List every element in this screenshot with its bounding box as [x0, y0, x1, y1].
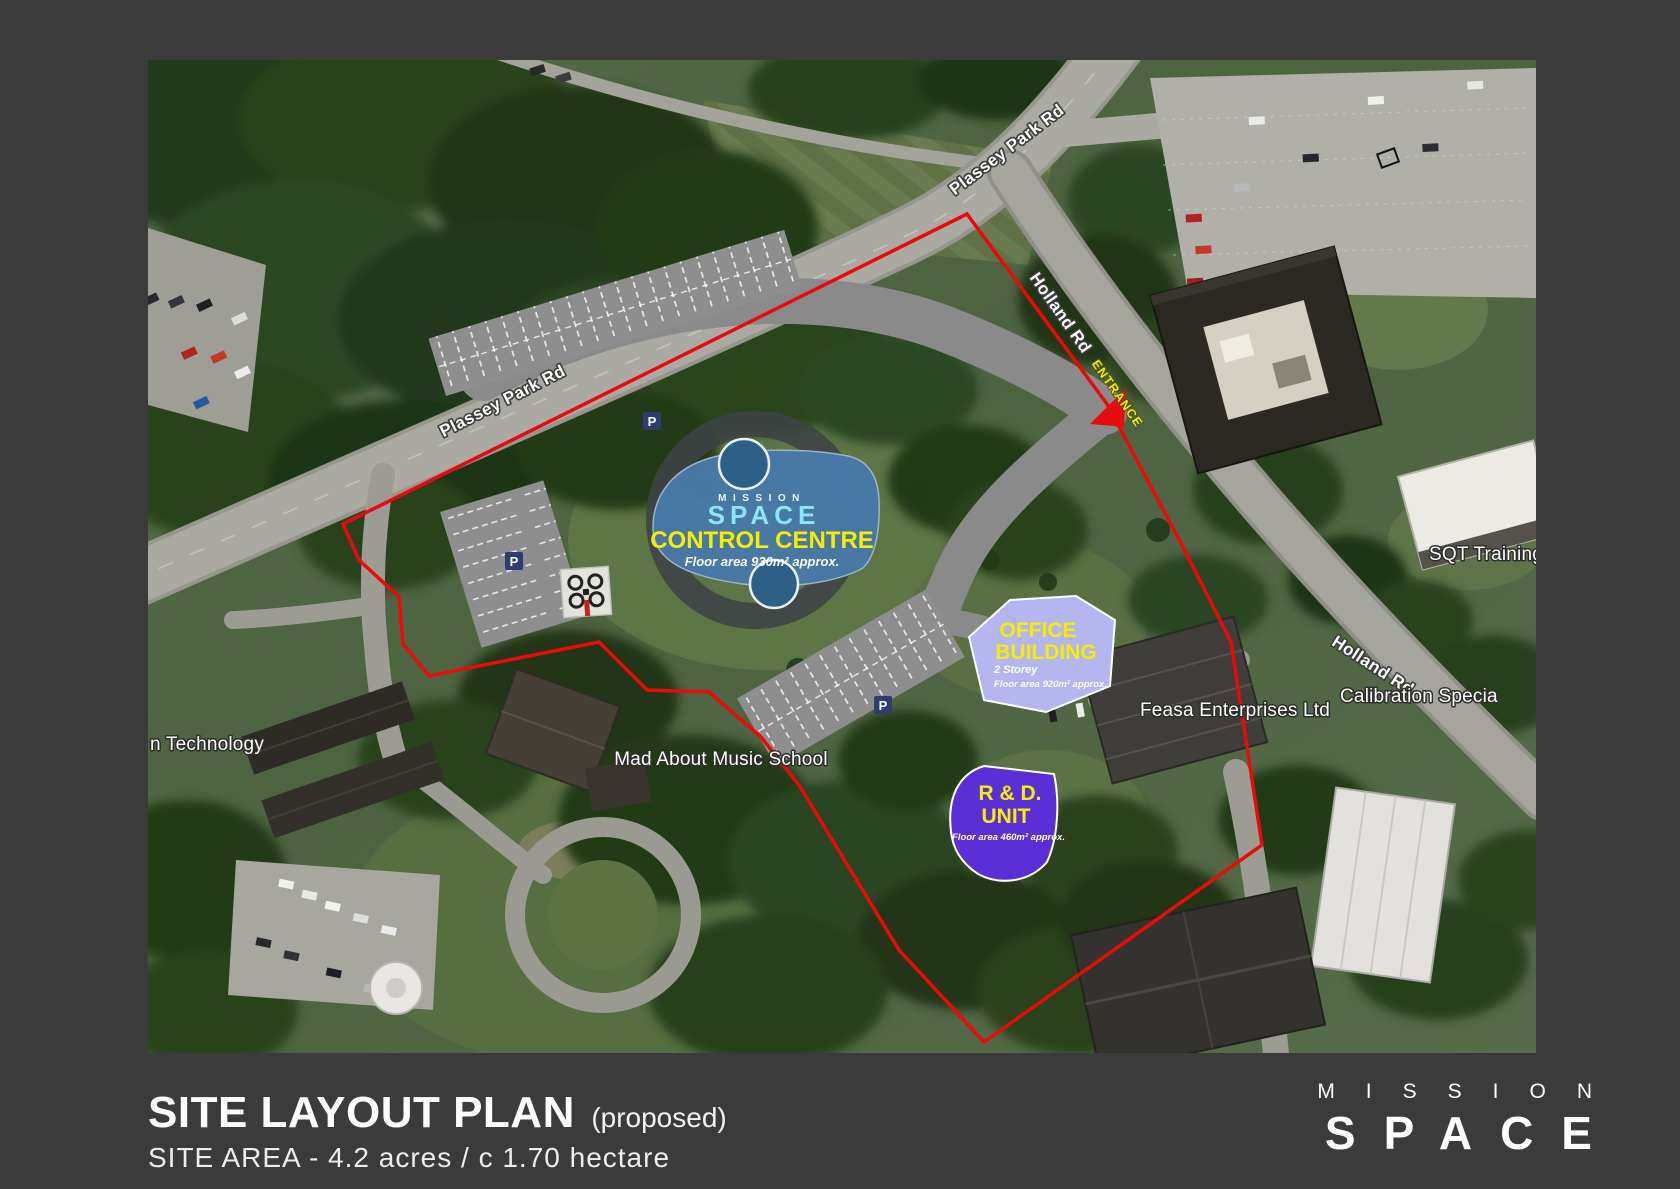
logo-mission-text: MISSION	[1317, 1080, 1623, 1104]
logo-space-text: SPACE	[1317, 1106, 1620, 1160]
place-label-calibration: Calibration Specia	[1340, 686, 1498, 707]
parking-badge-west-upper: P	[643, 412, 661, 430]
rd-unit-detail: Floor area 460m² approx.	[952, 832, 1065, 843]
control-centre-name: CONTROL CENTRE	[650, 527, 874, 554]
place-label-sqt: SQT Training	[1429, 544, 1536, 565]
page-title: SITE LAYOUT PLAN	[148, 1088, 575, 1138]
place-label-feasa: Feasa Enterprises Ltd	[1140, 700, 1330, 721]
dome-top	[386, 978, 406, 998]
footer-title-block: SITE LAYOUT PLAN (proposed) SITE AREA - …	[148, 1088, 727, 1174]
driveway-island	[548, 860, 658, 970]
office-name-line2: BUILDING	[995, 641, 1097, 664]
place-label-technology: n Technology	[150, 734, 264, 755]
satellite-map: P P P	[148, 60, 1536, 1053]
drone-pad-icon	[560, 566, 611, 617]
parking-badge-middle: P	[874, 696, 892, 714]
site-area-subtitle: SITE AREA - 4.2 acres / c 1.70 hectare	[148, 1142, 727, 1174]
control-centre-detail: Floor area 930m² approx.	[685, 554, 840, 569]
office-name-line1: OFFICE	[1000, 619, 1077, 642]
site-plan-svg: P P P	[148, 60, 1536, 1053]
parking-badge-west-lower: P	[505, 552, 523, 570]
page-title-suffix: (proposed)	[591, 1102, 726, 1134]
rd-unit-name-line1: R & D.	[979, 782, 1042, 805]
rd-unit-name-line2: UNIT	[982, 805, 1031, 828]
place-label-music-school: Mad About Music School	[614, 749, 828, 770]
control-centre-brand-main: SPACE	[708, 500, 821, 530]
page-background: P P P	[0, 0, 1680, 1189]
tower-circle-north	[719, 439, 769, 489]
white-warehouse	[1311, 788, 1455, 983]
parking-badge-label: P	[879, 698, 888, 713]
office-storey: 2 Storey	[993, 664, 1038, 676]
parking-badge-label: P	[648, 414, 657, 429]
mission-space-logo: MISSION SPACE	[1317, 1080, 1592, 1160]
office-detail: Floor area 920m² approx.	[994, 679, 1107, 690]
parking-badge-label: P	[510, 554, 519, 569]
